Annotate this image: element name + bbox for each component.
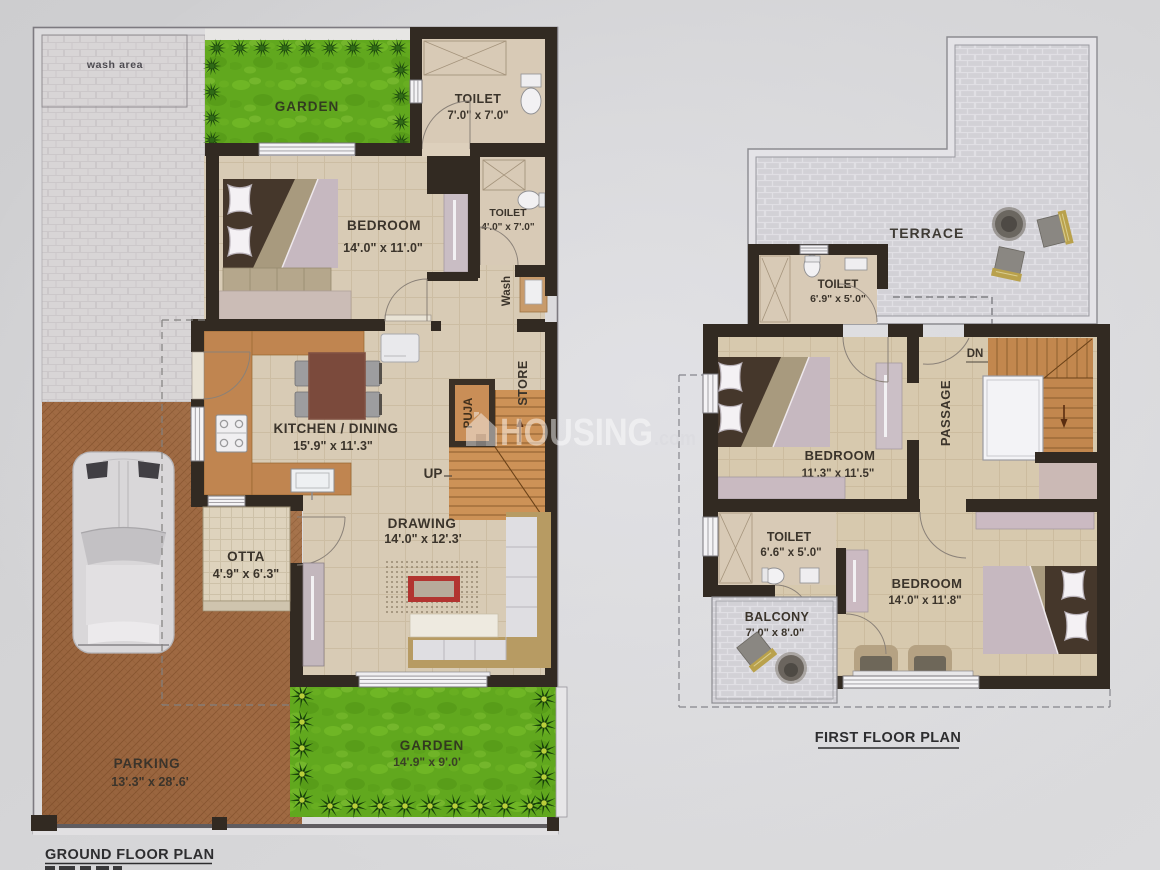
svg-text:GARDEN: GARDEN (400, 738, 465, 753)
svg-text:PASSAGE: PASSAGE (938, 380, 953, 446)
svg-text:BEDROOM: BEDROOM (892, 576, 963, 591)
svg-text:7'.0" x 7'.0": 7'.0" x 7'.0" (447, 110, 508, 122)
svg-text:FIRST FLOOR PLAN: FIRST FLOOR PLAN (815, 730, 962, 746)
svg-text:Wash: Wash (501, 276, 513, 306)
svg-text:GARDEN: GARDEN (275, 99, 340, 114)
svg-text:4'.0" x 7'.0": 4'.0" x 7'.0" (481, 222, 534, 233)
svg-text:BEDROOM: BEDROOM (347, 218, 421, 233)
svg-text:TOILET: TOILET (767, 530, 812, 544)
svg-text:TOILET: TOILET (818, 279, 859, 291)
svg-text:STORE: STORE (516, 360, 530, 405)
svg-text:14'.0" x 12'.3': 14'.0" x 12'.3' (384, 532, 461, 546)
svg-text:TERRACE: TERRACE (890, 225, 965, 241)
svg-text:GROUND FLOOR PLAN: GROUND FLOOR PLAN (45, 847, 215, 863)
svg-text:14'.0" x 11'.0": 14'.0" x 11'.0" (343, 241, 423, 255)
svg-text:BALCONY: BALCONY (745, 610, 810, 624)
svg-text:KITCHEN / DINING: KITCHEN / DINING (274, 421, 399, 436)
svg-text:BEDROOM: BEDROOM (805, 448, 876, 463)
svg-text:13'.3" x 28'.6': 13'.3" x 28'.6' (111, 775, 188, 789)
svg-text:OTTA: OTTA (227, 549, 265, 564)
svg-text:PARKING: PARKING (114, 756, 181, 771)
svg-text:14'.0" x 11'.8": 14'.0" x 11'.8" (888, 595, 961, 607)
svg-text:6'.6" x 5'.0": 6'.6" x 5'.0" (760, 547, 821, 559)
svg-text:6'.9" x 5'.0": 6'.9" x 5'.0" (810, 293, 866, 305)
svg-text:UP: UP (424, 466, 443, 481)
svg-text:wash area: wash area (86, 59, 143, 71)
svg-text:HOUSING: HOUSING (500, 412, 653, 454)
svg-text:TOILET: TOILET (455, 92, 502, 106)
svg-text:DN: DN (967, 348, 984, 360)
svg-text:15'.9" x 11'.3": 15'.9" x 11'.3" (293, 439, 373, 453)
svg-text:4'.9" x 6'.3": 4'.9" x 6'.3" (213, 567, 280, 581)
svg-text:14'.9" x 9'.0': 14'.9" x 9'.0' (393, 755, 461, 769)
svg-text:TOILET: TOILET (489, 207, 527, 219)
svg-text:.com: .com (654, 428, 696, 450)
svg-text:DRAWING: DRAWING (388, 516, 457, 531)
